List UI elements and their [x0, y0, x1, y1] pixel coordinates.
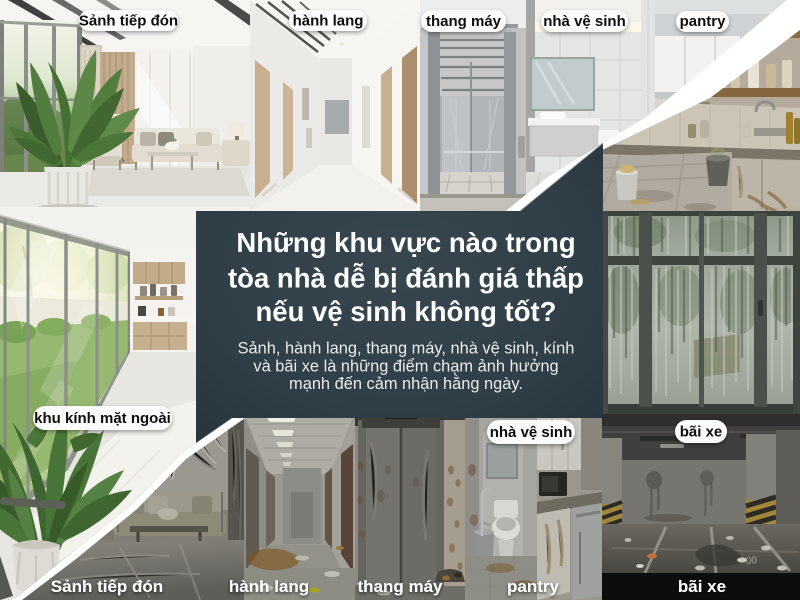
svg-text:00: 00	[745, 555, 757, 567]
svg-text:pantry: pantry	[680, 13, 727, 30]
svg-text:Sảnh, hành lang, thang máy, nh: Sảnh, hành lang, thang máy, nhà vệ sinh,…	[238, 340, 575, 358]
svg-text:bãi xe: bãi xe	[680, 424, 723, 441]
svg-text:pantry: pantry	[507, 577, 560, 596]
svg-text:mạnh đến cảm nhận hằng ngày.: mạnh đến cảm nhận hằng ngày.	[289, 374, 523, 393]
svg-text:nếu vệ sinh không tốt?: nếu vệ sinh không tốt?	[256, 296, 557, 327]
svg-text:hành lang: hành lang	[229, 577, 309, 596]
svg-text:hành lang: hành lang	[293, 13, 364, 30]
svg-text:và bãi xe là những điểm chạm ả: và bãi xe là những điểm chạm ảnh hưởng	[253, 358, 558, 376]
svg-text:khu kính mặt ngoài: khu kính mặt ngoài	[34, 410, 171, 427]
svg-text:tòa nhà dễ bị đánh giá thấp: tòa nhà dễ bị đánh giá thấp	[228, 263, 584, 294]
svg-text:thang máy: thang máy	[357, 577, 443, 596]
svg-text:thang máy: thang máy	[426, 13, 502, 30]
svg-text:Sảnh tiếp đón: Sảnh tiếp đón	[51, 577, 163, 596]
svg-text:bãi xe: bãi xe	[678, 577, 726, 596]
svg-text:Sảnh tiếp đón: Sảnh tiếp đón	[79, 13, 178, 30]
svg-text:nhà vệ sinh: nhà vệ sinh	[490, 424, 573, 441]
svg-text:Những khu vực nào trong: Những khu vực nào trong	[236, 227, 575, 258]
svg-text:nhà vệ sinh: nhà vệ sinh	[543, 13, 626, 30]
